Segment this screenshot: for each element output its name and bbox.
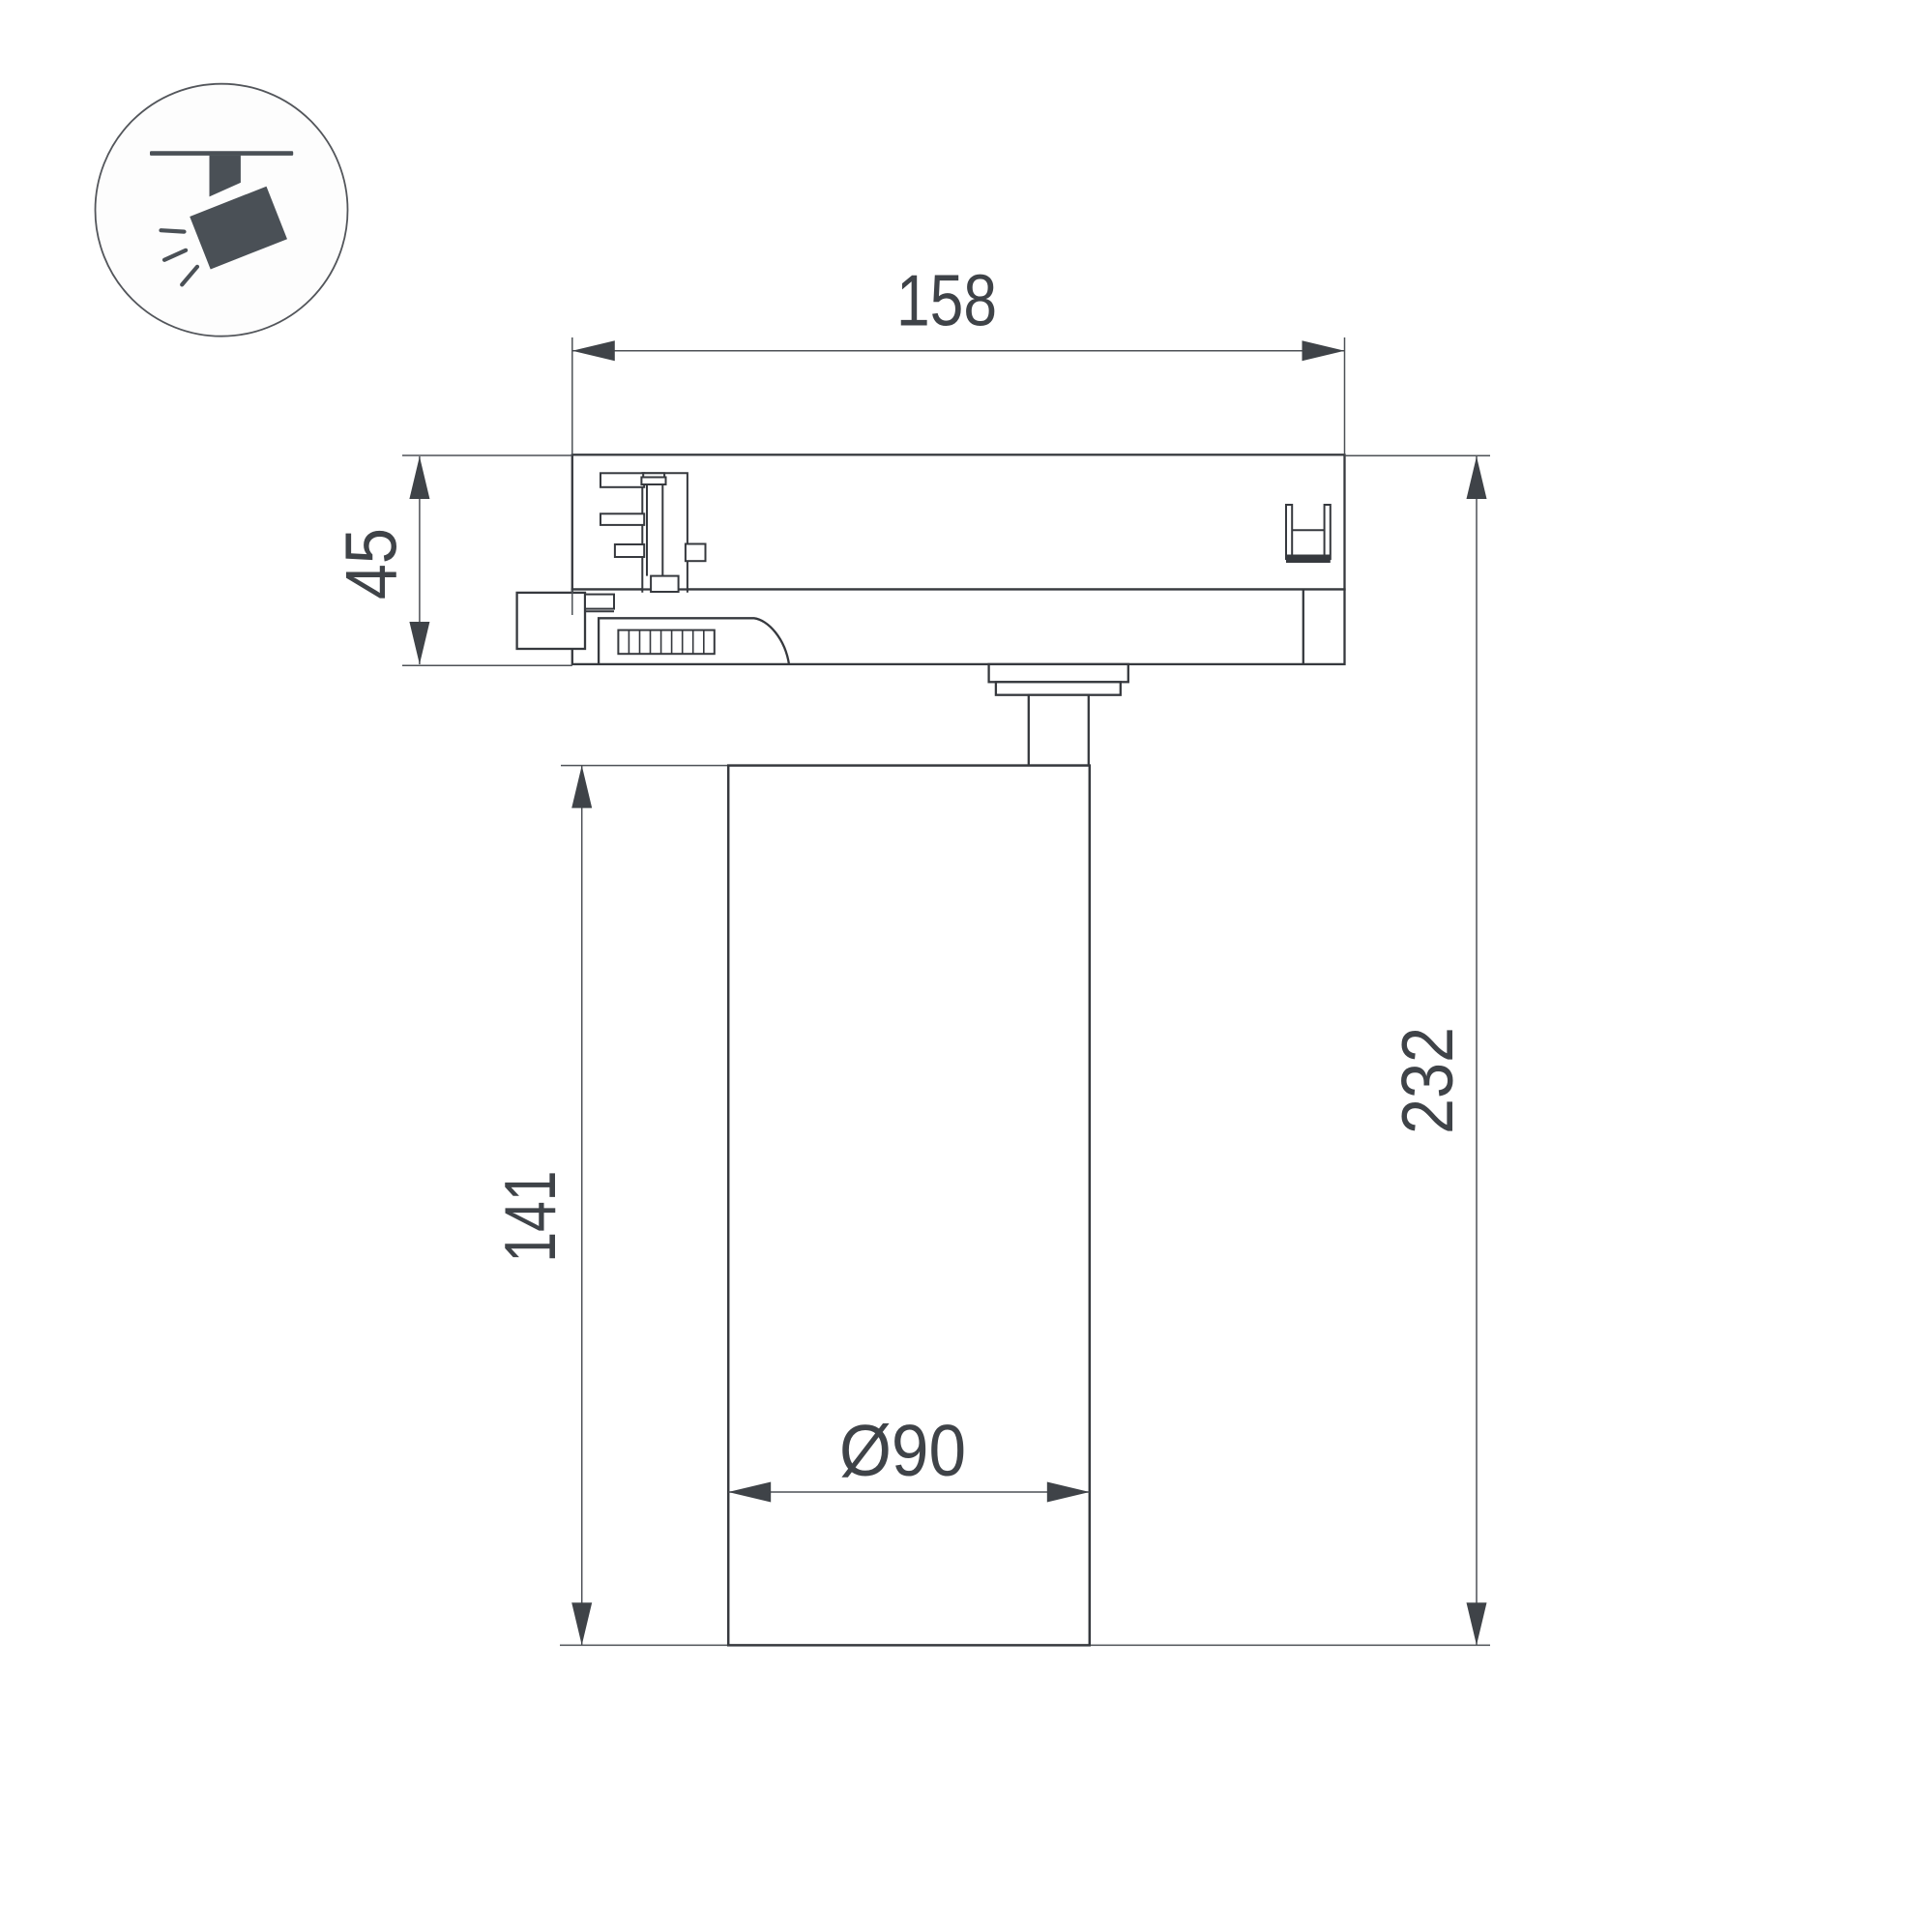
- svg-text:158: 158: [896, 260, 997, 341]
- svg-text:141: 141: [489, 1171, 571, 1263]
- svg-text:Ø90: Ø90: [839, 1410, 966, 1491]
- svg-text:232: 232: [1387, 1027, 1468, 1134]
- svg-text:45: 45: [331, 528, 412, 600]
